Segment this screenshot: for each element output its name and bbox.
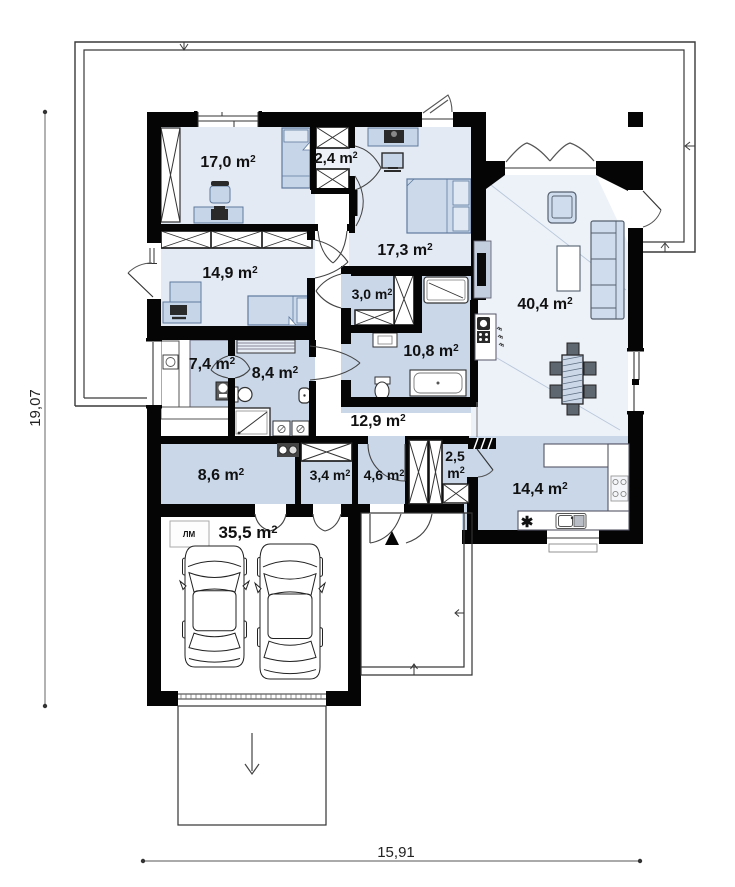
svg-text:8,4 m2: 8,4 m2 xyxy=(252,365,299,382)
svg-text:15,91: 15,91 xyxy=(377,844,415,861)
svg-text:3,0 m2: 3,0 m2 xyxy=(352,286,393,302)
svg-text:4,6 m2: 4,6 m2 xyxy=(364,467,405,483)
svg-text:40,4 m2: 40,4 m2 xyxy=(517,296,573,313)
svg-text:✱: ✱ xyxy=(521,514,534,531)
svg-text:10,8 m2: 10,8 m2 xyxy=(403,343,459,360)
svg-text:17,3 m2: 17,3 m2 xyxy=(377,242,433,259)
svg-text:2,4 m2: 2,4 m2 xyxy=(314,150,357,167)
svg-text:17,0 m2: 17,0 m2 xyxy=(200,154,256,171)
svg-text:ЛМ: ЛМ xyxy=(183,530,196,539)
svg-text:14,4 m2: 14,4 m2 xyxy=(512,481,568,498)
svg-text:35,5 m2: 35,5 m2 xyxy=(218,523,277,542)
svg-text:3,4 m2: 3,4 m2 xyxy=(310,467,351,483)
svg-text:7,4 m2: 7,4 m2 xyxy=(189,356,236,373)
svg-text:19,07: 19,07 xyxy=(27,389,44,427)
svg-text:8,6 m2: 8,6 m2 xyxy=(198,467,245,484)
svg-text:2,5: 2,5 xyxy=(445,448,465,464)
svg-text:14,9 m2: 14,9 m2 xyxy=(202,265,258,282)
svg-text:12,9 m2: 12,9 m2 xyxy=(350,413,406,430)
